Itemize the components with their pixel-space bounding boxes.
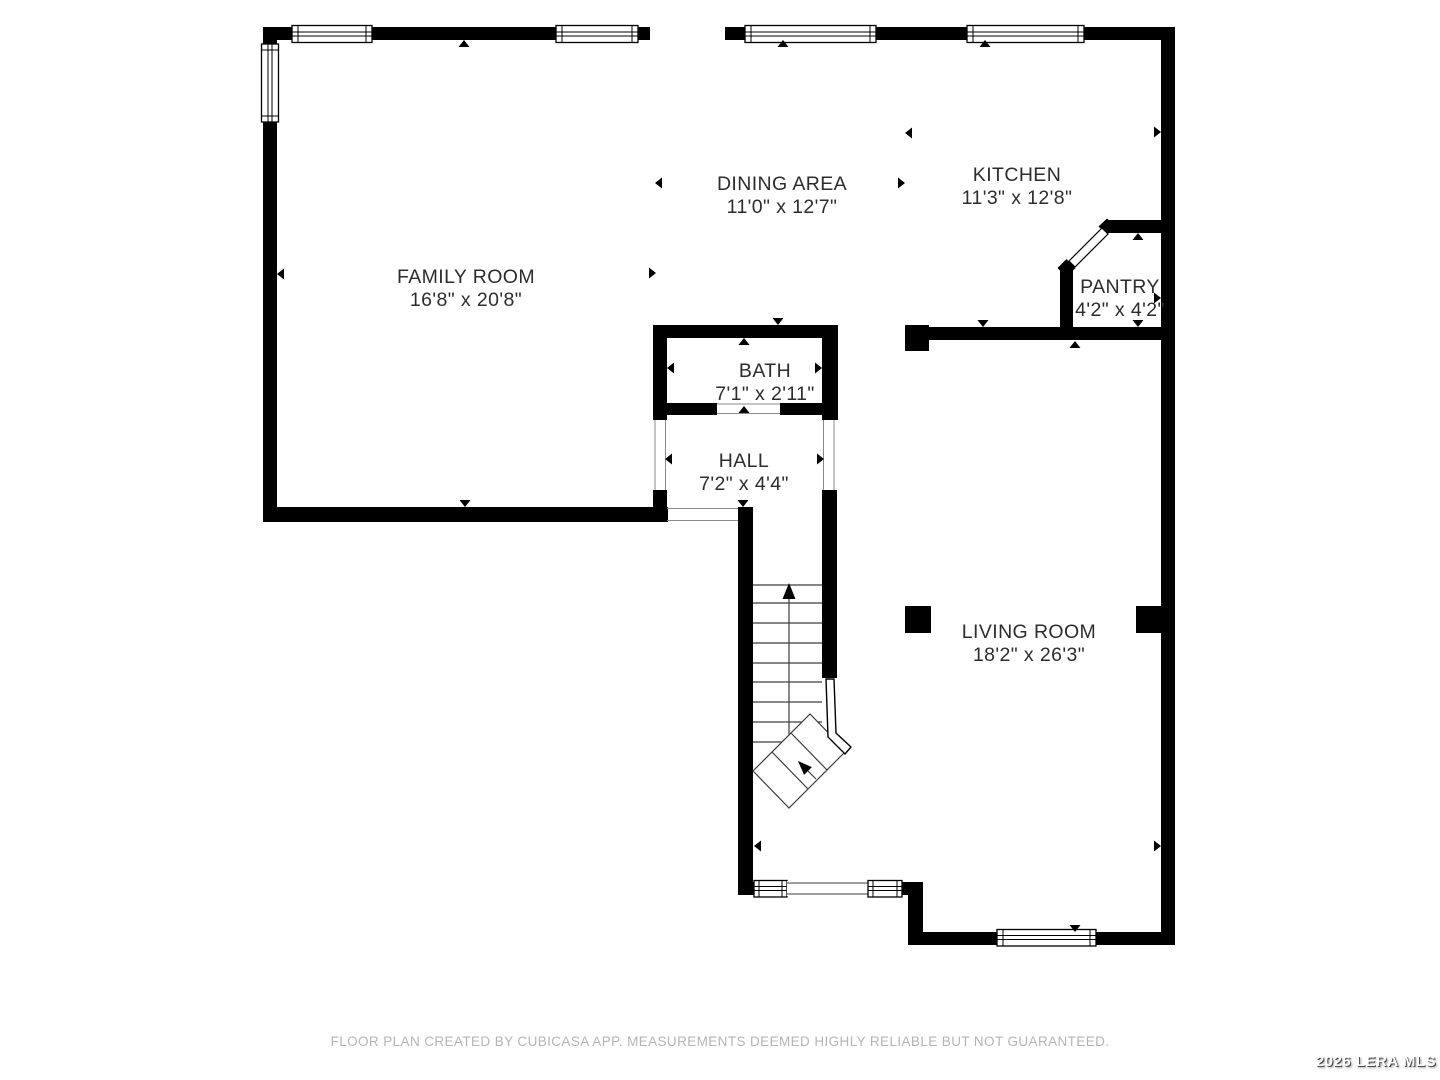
disclaimer-text: FLOOR PLAN CREATED BY CUBICASA APP. MEAS… (0, 1034, 1440, 1049)
room-name: LIVING ROOM (962, 621, 1096, 644)
room-dimensions: 7'1" x 2'11" (715, 383, 814, 406)
window (556, 26, 638, 43)
room-dimensions: 7'2" x 4'4" (699, 473, 789, 496)
room-label-family-room: FAMILY ROOM 16'8" x 20'8" (397, 266, 535, 312)
room-dimensions: 16'8" x 20'8" (397, 289, 535, 312)
room-label-kitchen: KITCHEN 11'3" x 12'8" (962, 164, 1073, 210)
window (868, 881, 902, 898)
floor-plan-drawing (0, 0, 1440, 1080)
pantry-door (1069, 228, 1108, 267)
room-dimensions: 18'2" x 26'3" (962, 644, 1096, 667)
room-label-hall: HALL 7'2" x 4'4" (699, 450, 789, 496)
room-dimensions: 11'0" x 12'7" (717, 196, 847, 219)
room-label-bath: BATH 7'1" x 2'11" (715, 360, 814, 406)
room-label-pantry: PANTRY 4'2" x 4'2" (1075, 276, 1165, 322)
room-name: DINING AREA (717, 173, 847, 196)
window (292, 26, 372, 43)
mls-watermark: 2026 LERA MLS (1316, 1053, 1436, 1070)
room-name: HALL (699, 450, 789, 473)
window (745, 26, 876, 43)
room-dimensions: 11'3" x 12'8" (962, 187, 1073, 210)
window (967, 26, 1084, 43)
window (997, 930, 1096, 947)
room-name: PANTRY (1075, 276, 1165, 299)
window (262, 44, 279, 122)
room-dimensions: 4'2" x 4'2" (1075, 299, 1165, 322)
room-label-dining-area: DINING AREA 11'0" x 12'7" (717, 173, 847, 219)
room-name: BATH (715, 360, 814, 383)
door-opening (787, 881, 868, 896)
room-label-living-room: LIVING ROOM 18'2" x 26'3" (962, 621, 1096, 667)
window (754, 881, 787, 898)
room-name: KITCHEN (962, 164, 1073, 187)
room-name: FAMILY ROOM (397, 266, 535, 289)
